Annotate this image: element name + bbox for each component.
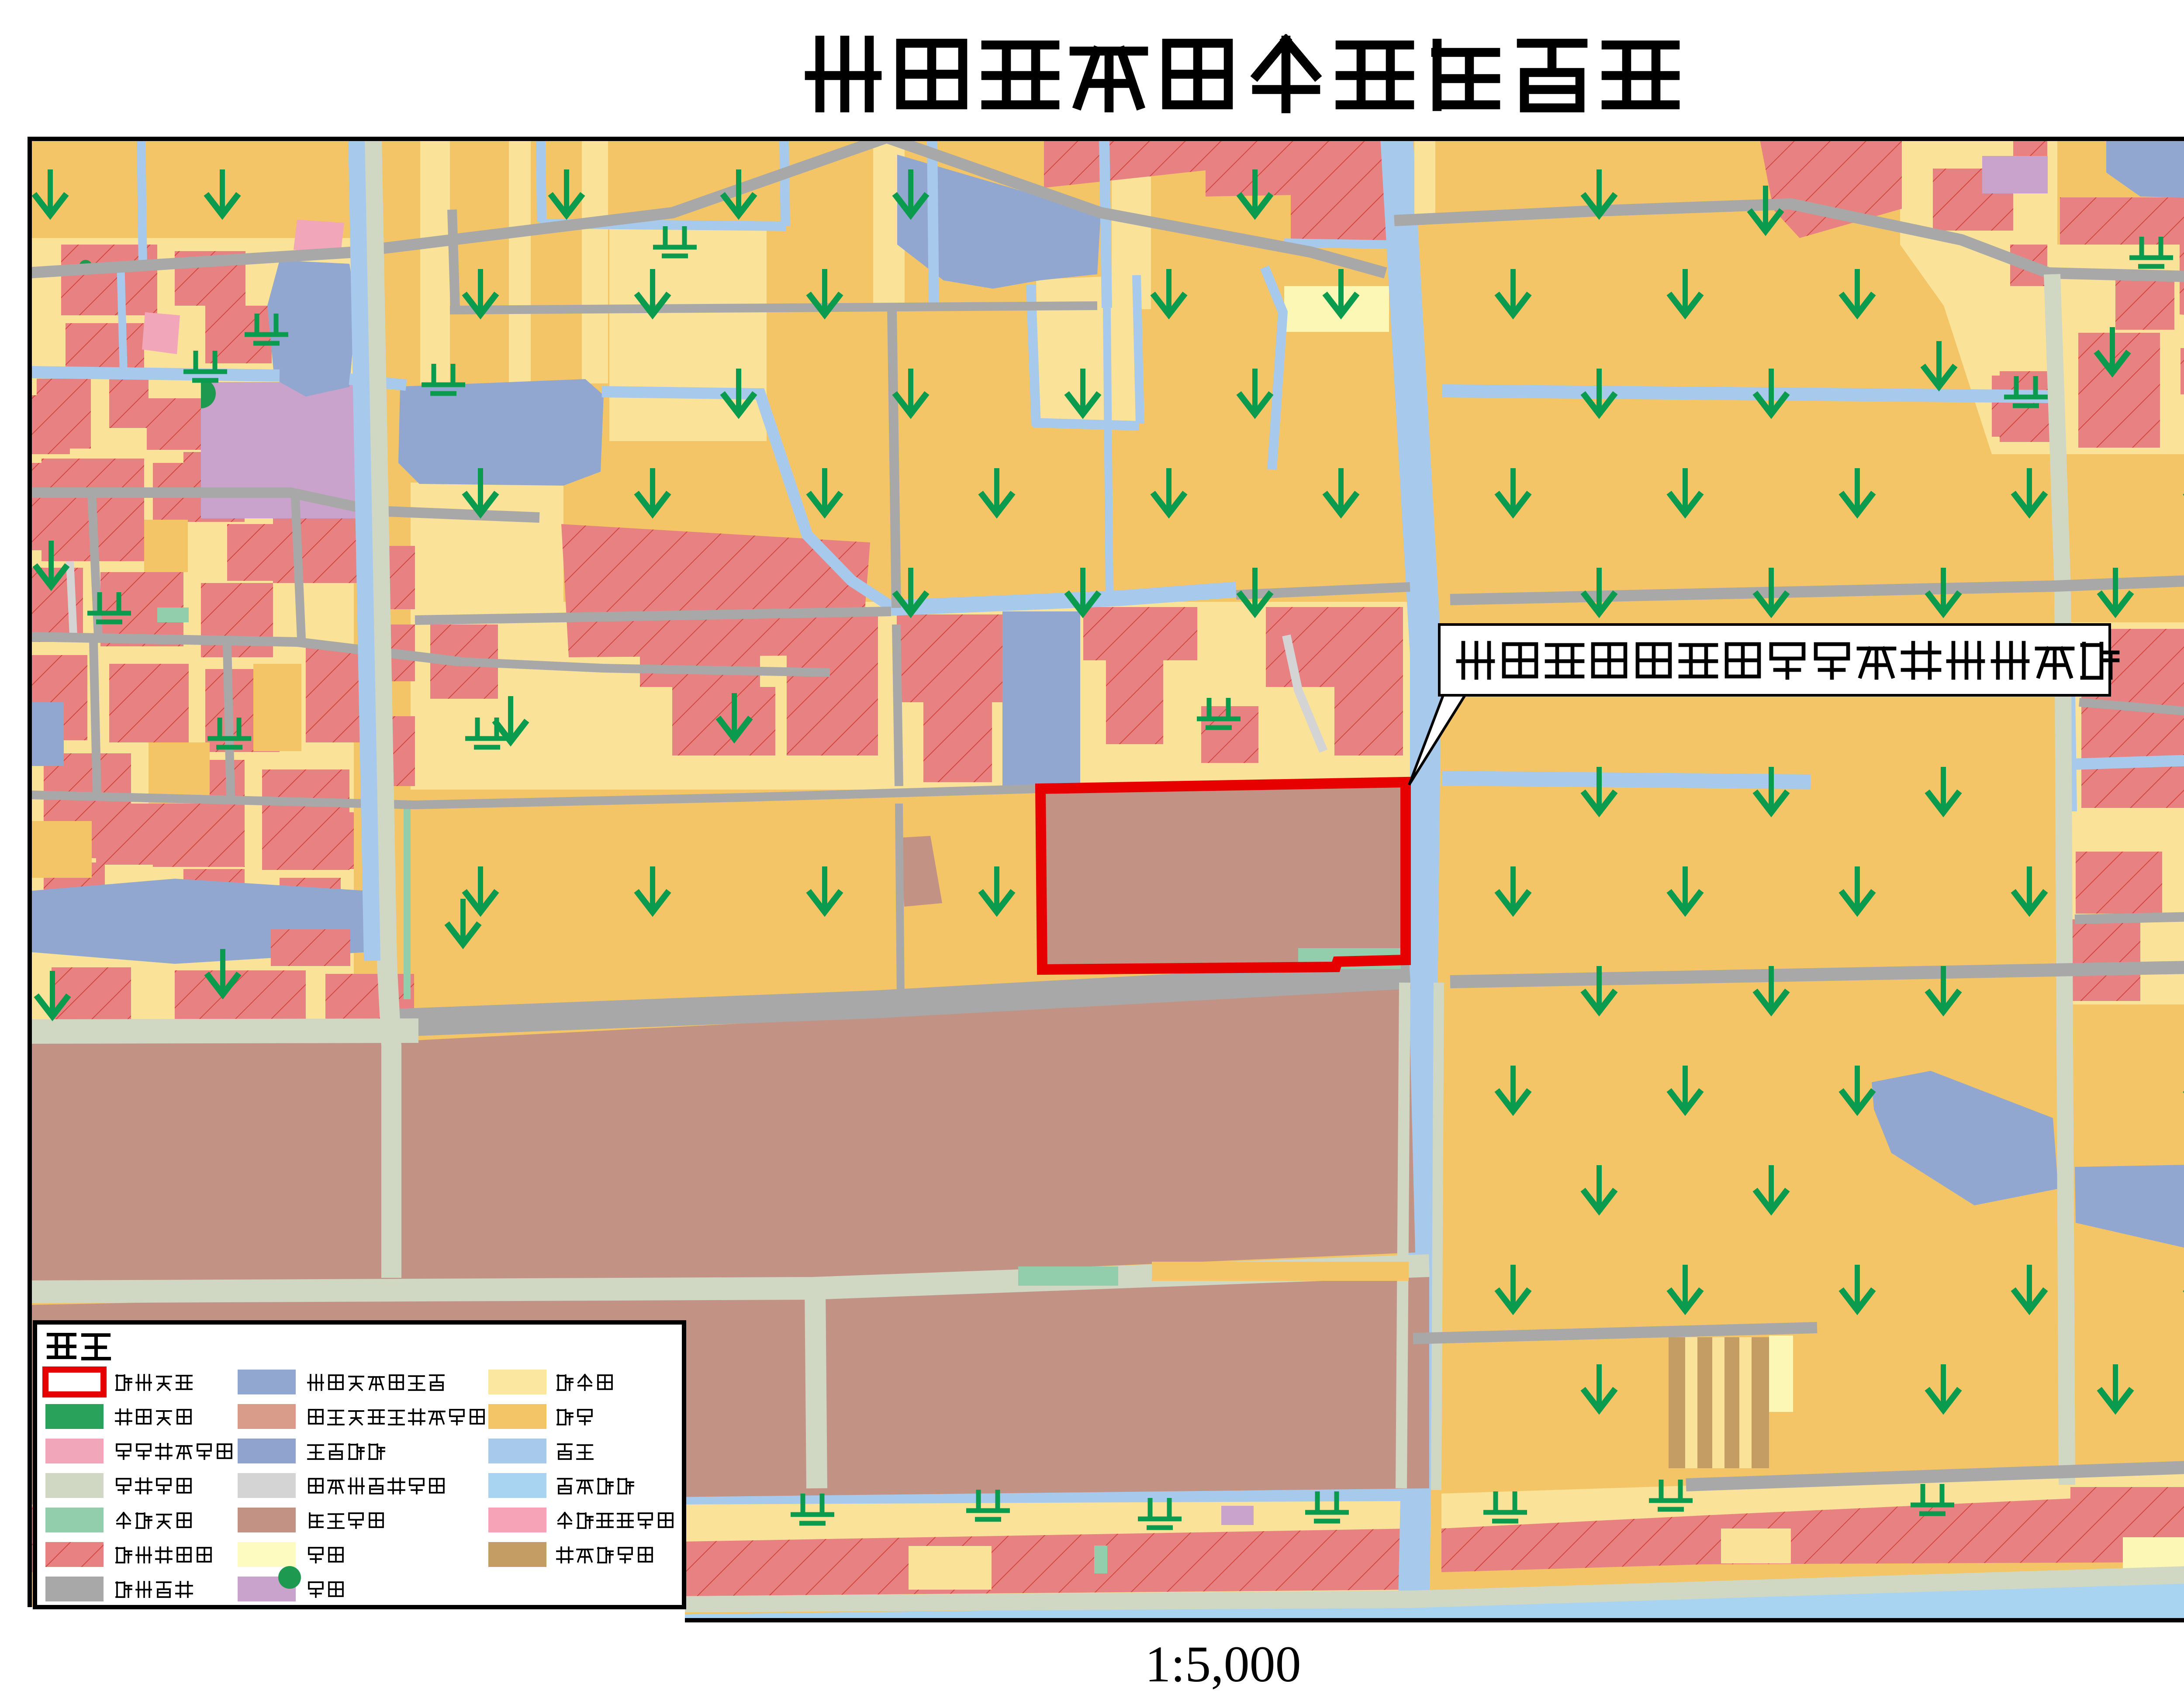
svg-text:1:5,000: 1:5,000 (1145, 1636, 1301, 1693)
